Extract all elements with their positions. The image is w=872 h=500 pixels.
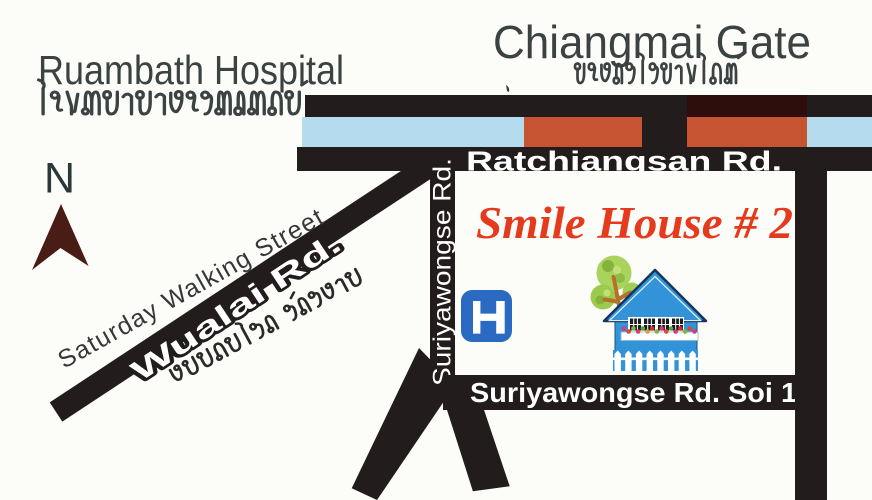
svg-text:Chiangmai Gate: Chiangmai Gate bbox=[493, 16, 811, 68]
svg-text:Suriyawongse Rd. Soi 1: Suriyawongse Rd. Soi 1 bbox=[470, 377, 797, 408]
svg-text:Suriyawongse Rd.: Suriyawongse Rd. bbox=[429, 158, 457, 386]
svg-text:Ruambath Hospital: Ruambath Hospital bbox=[38, 47, 344, 93]
svg-text:N: N bbox=[44, 155, 75, 203]
svg-text:Ratchiangsan Rd.: Ratchiangsan Rd. bbox=[466, 146, 782, 177]
svg-text:Smile House # 2: Smile House # 2 bbox=[476, 198, 793, 248]
